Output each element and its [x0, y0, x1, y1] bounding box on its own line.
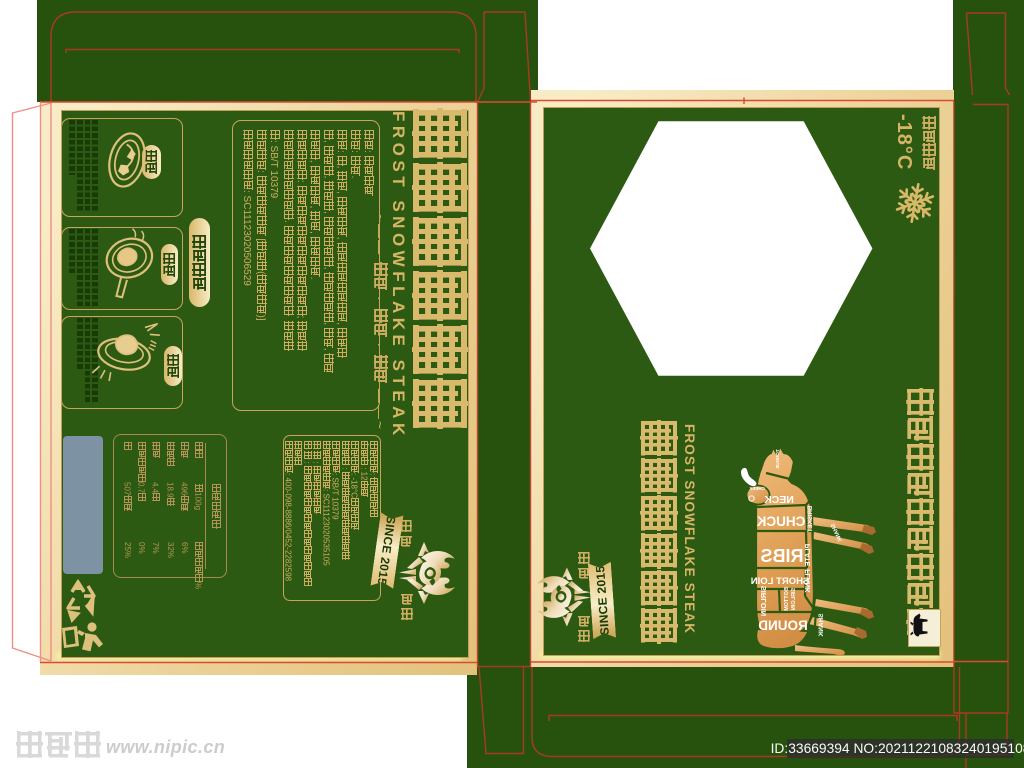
- svg-text:SHANK: SHANK: [818, 613, 825, 636]
- svg-text:CHUCK: CHUCK: [756, 514, 805, 529]
- svg-text:PLATE: PLATE: [805, 544, 812, 567]
- svg-text:SIRLOIN: SIRLOIN: [791, 588, 797, 610]
- svg-text:SIRLOIN: SIRLOIN: [759, 586, 768, 616]
- svg-text:CHEEK: CHEEK: [748, 486, 765, 491]
- svg-text:BOTTOM: BOTTOM: [784, 587, 790, 611]
- svg-text:ROUND: ROUND: [758, 618, 808, 633]
- svg-text:NECK: NECK: [764, 494, 794, 506]
- svg-text:FLANK: FLANK: [805, 569, 812, 593]
- svg-text:BRISKET: BRISKET: [808, 506, 814, 533]
- svg-text:TONGUE: TONGUE: [775, 449, 780, 468]
- svg-text:RIBS: RIBS: [760, 546, 803, 566]
